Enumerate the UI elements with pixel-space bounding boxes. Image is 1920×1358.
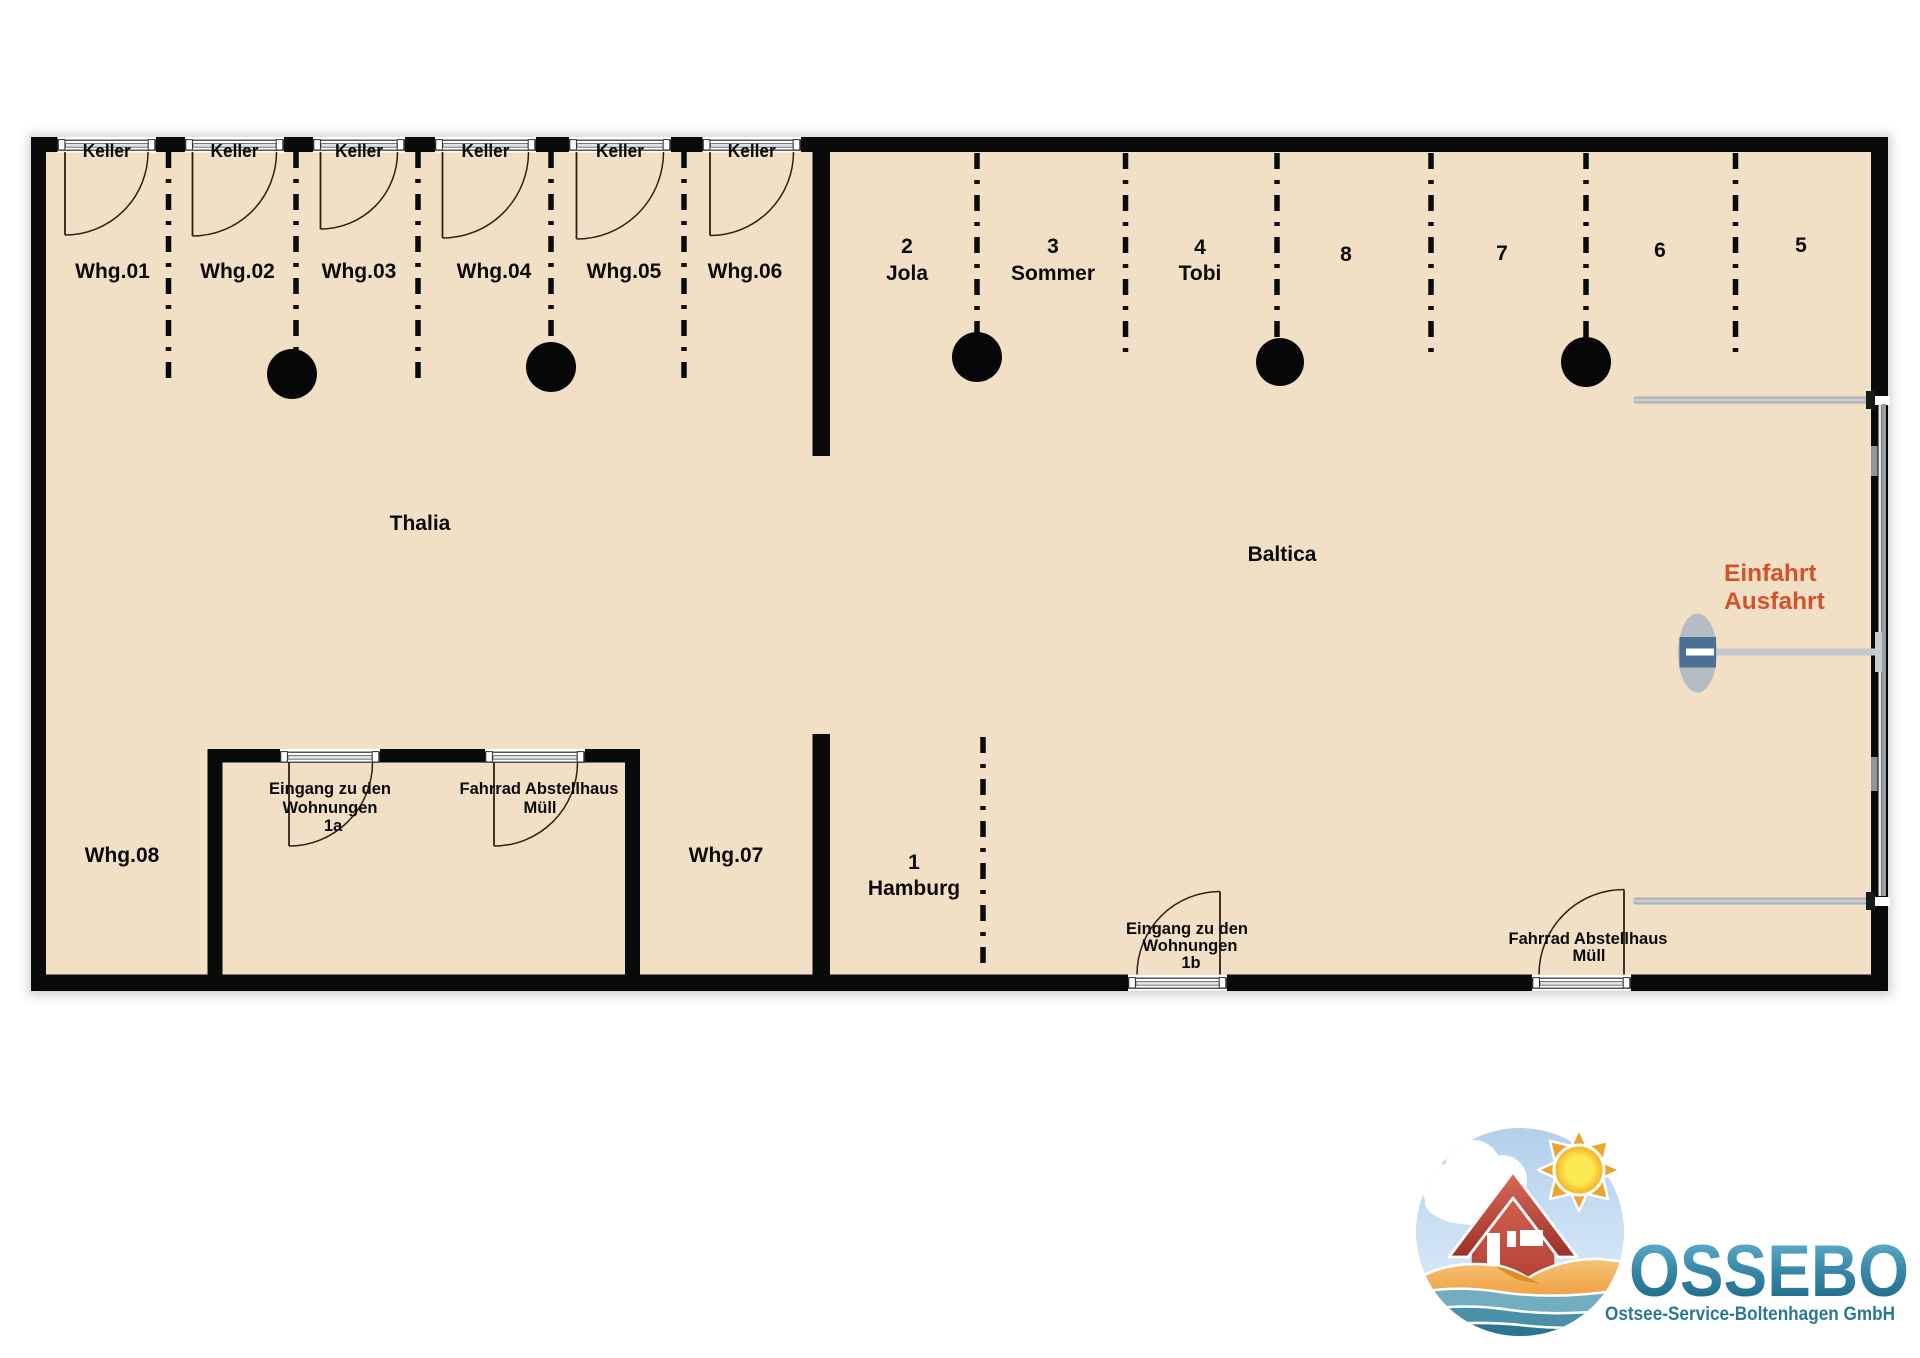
svg-text:Ostsee-Service-Boltenhagen Gmb: Ostsee-Service-Boltenhagen GmbH xyxy=(1605,1304,1895,1325)
svg-text:Keller: Keller xyxy=(596,140,644,161)
svg-text:Keller: Keller xyxy=(728,140,776,161)
svg-text:Einfahrt: Einfahrt xyxy=(1724,560,1817,587)
svg-text:Whg.01: Whg.01 xyxy=(75,260,150,283)
svg-text:Jola: Jola xyxy=(886,262,928,285)
svg-text:Eingang zu den: Eingang zu den xyxy=(269,780,391,798)
svg-text:Müll: Müll xyxy=(1573,947,1606,965)
svg-text:8: 8 xyxy=(1340,243,1352,266)
svg-text:Thalia: Thalia xyxy=(390,512,451,535)
svg-text:Ausfahrt: Ausfahrt xyxy=(1724,588,1825,615)
svg-text:6: 6 xyxy=(1654,239,1666,262)
svg-text:Whg.06: Whg.06 xyxy=(708,260,783,283)
svg-text:Keller: Keller xyxy=(83,140,131,161)
svg-text:OSSEBO: OSSEBO xyxy=(1629,1231,1909,1312)
svg-text:Fahrrad Abstellhaus: Fahrrad Abstellhaus xyxy=(460,780,619,798)
svg-text:7: 7 xyxy=(1496,242,1508,265)
svg-text:Whg.08: Whg.08 xyxy=(85,844,160,867)
svg-text:Whg.04: Whg.04 xyxy=(457,260,532,283)
svg-text:Whg.02: Whg.02 xyxy=(200,260,275,283)
svg-text:Fahrrad Abstellhaus: Fahrrad Abstellhaus xyxy=(1509,930,1668,948)
svg-text:Whg.07: Whg.07 xyxy=(689,844,764,867)
svg-text:Sommer: Sommer xyxy=(1011,262,1095,285)
svg-text:Keller: Keller xyxy=(335,140,383,161)
svg-text:1b: 1b xyxy=(1181,954,1200,972)
svg-text:Hamburg: Hamburg xyxy=(868,877,960,900)
svg-text:Whg.03: Whg.03 xyxy=(322,260,397,283)
svg-text:Whg.05: Whg.05 xyxy=(587,260,662,283)
svg-text:4: 4 xyxy=(1194,236,1206,259)
svg-text:Wohnungen: Wohnungen xyxy=(1142,937,1237,955)
svg-text:Eingang zu den: Eingang zu den xyxy=(1126,920,1248,938)
svg-text:1a: 1a xyxy=(324,817,343,835)
svg-text:Baltica: Baltica xyxy=(1248,543,1317,566)
svg-text:2: 2 xyxy=(901,235,913,258)
svg-text:5: 5 xyxy=(1795,234,1807,257)
svg-text:3: 3 xyxy=(1047,235,1059,258)
svg-text:1: 1 xyxy=(908,851,920,874)
svg-text:Keller: Keller xyxy=(211,140,259,161)
svg-text:Wohnungen: Wohnungen xyxy=(282,799,377,817)
svg-text:Tobi: Tobi xyxy=(1179,262,1222,285)
svg-text:Müll: Müll xyxy=(524,799,557,817)
svg-text:Keller: Keller xyxy=(462,140,510,161)
